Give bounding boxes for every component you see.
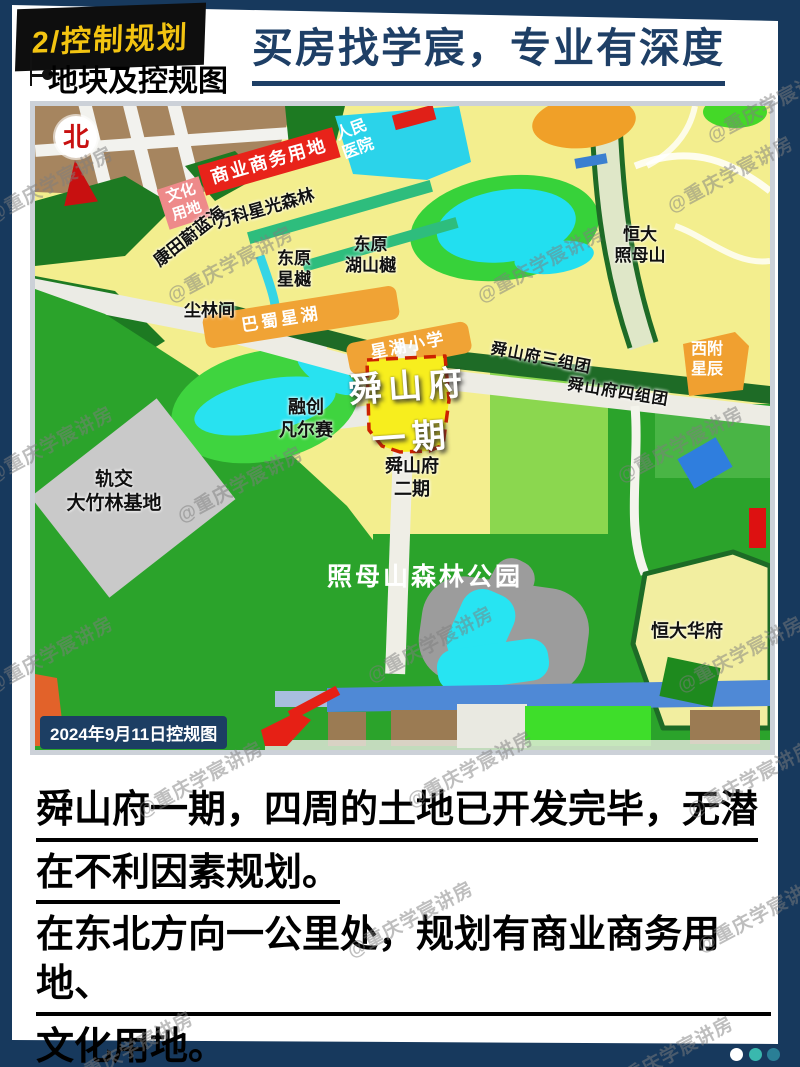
zoning-map-frame: 北 商业商务用地 文化 用地 人民 医院 万科星光森林 康田蔚蓝海 东原 星樾 … xyxy=(30,101,775,755)
compass-needle-icon xyxy=(58,158,98,206)
map-label-forest-park: 照母山森林公园 xyxy=(327,562,523,593)
note-line: 文化用地。 xyxy=(36,1023,771,1067)
map-label-xifu-xingchen: 西附 星辰 xyxy=(691,340,723,380)
note-line: 在不利因素规划。 xyxy=(36,849,771,905)
note-line: 舜山府一期，四周的土地已开发完毕，无潜 xyxy=(36,786,771,842)
map-label-dongyuan-xingyue: 东原 星樾 xyxy=(277,248,311,291)
section-title: 地块及控规图 xyxy=(48,56,228,100)
infographic-page: 2/控制规划 买房找学宸，专业有深度 地块及控规图 xyxy=(0,0,800,1067)
map-label-hengda-huafu: 恒大华府 xyxy=(651,620,723,643)
analysis-notes: 舜山府一期，四周的土地已开发完毕，无潜 在不利因素规划。 在东北方向一公里处，规… xyxy=(36,786,771,1067)
map-label-shunshanfu-phase2: 舜山府 二期 xyxy=(357,455,467,500)
brand-slogan: 买房找学宸，专业有深度 xyxy=(252,14,725,86)
compass-north-label: 北 xyxy=(55,116,97,158)
pagination-dot-2[interactable] xyxy=(749,1048,762,1061)
map-date-badge: 2024年9月11日控规图 xyxy=(40,716,227,749)
map-label-hengda-zhaomushan: 恒大 照母山 xyxy=(595,224,685,267)
zoning-map: 北 商业商务用地 文化 用地 人民 医院 万科星光森林 康田蔚蓝海 东原 星樾 … xyxy=(35,106,770,750)
pagination-dot-3[interactable] xyxy=(767,1048,780,1061)
note-line: 在东北方向一公里处，规划有商业商务用地、 xyxy=(36,911,771,1015)
map-label-dongyuan-hushanyue: 东原 湖山樾 xyxy=(345,234,396,277)
map-label-sunac-versailles: 融创 凡尔赛 xyxy=(251,396,361,441)
map-label-chenlinjian: 尘林间 xyxy=(184,300,235,321)
section-bracket-line xyxy=(30,40,32,86)
map-label-metro-depot: 轨交 大竹林基地 xyxy=(39,468,189,516)
pagination-dot-1[interactable] xyxy=(730,1048,743,1061)
